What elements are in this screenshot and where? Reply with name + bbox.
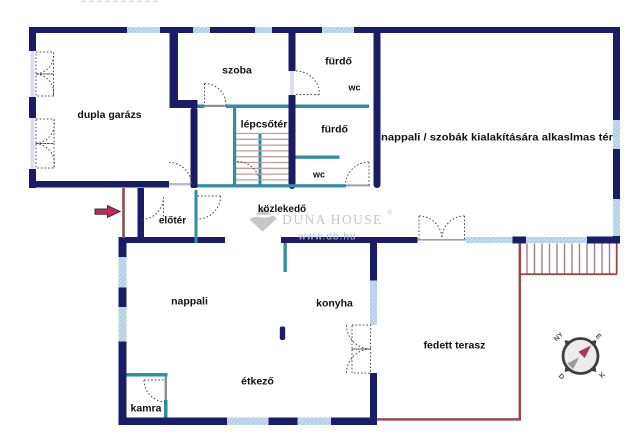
svg-text:wc: wc bbox=[347, 83, 360, 93]
svg-text:kamra: kamra bbox=[131, 403, 162, 415]
svg-text:fürdő: fürdő bbox=[325, 56, 352, 68]
svg-text:dupla garázs: dupla garázs bbox=[77, 109, 141, 121]
svg-text:közlekedő: közlekedő bbox=[258, 204, 306, 215]
svg-text:konyha: konyha bbox=[316, 298, 353, 310]
svg-text:lépcsőtér: lépcsőtér bbox=[241, 119, 288, 131]
svg-text:®: ® bbox=[387, 209, 393, 217]
svg-text:nappali: nappali bbox=[171, 296, 208, 308]
svg-text:fedett terasz: fedett terasz bbox=[424, 340, 486, 352]
svg-text:szoba: szoba bbox=[222, 65, 252, 77]
svg-text:étkező: étkező bbox=[241, 376, 274, 388]
svg-text:nappali / szobák kialakítására: nappali / szobák kialakítására alkaslmas… bbox=[381, 132, 613, 144]
svg-text:www.db.hu: www.db.hu bbox=[298, 232, 357, 243]
svg-text:wc: wc bbox=[312, 170, 325, 180]
svg-text:előtér: előtér bbox=[159, 216, 186, 227]
svg-text:fürdő: fürdő bbox=[321, 124, 348, 136]
